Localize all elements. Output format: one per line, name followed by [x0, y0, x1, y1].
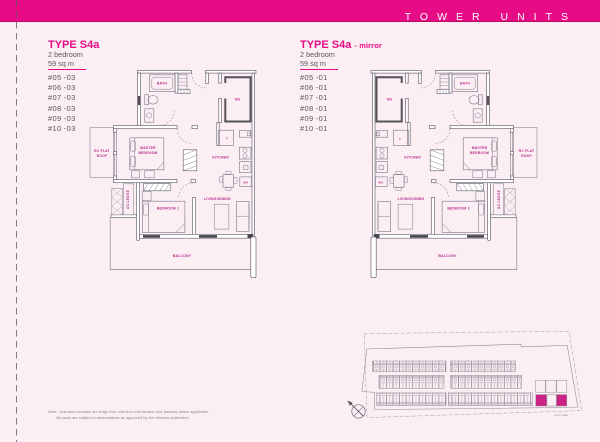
svg-text:BEDROOM 1: BEDROOM 1 — [447, 207, 469, 211]
svg-text:KITCHEN: KITCHEN — [404, 155, 421, 159]
svg-text:not to scale: not to scale — [554, 413, 568, 417]
svg-text:RC FLATROOF: RC FLATROOF — [519, 149, 535, 158]
svg-text:BALCONY: BALCONY — [438, 254, 457, 258]
svg-text:F: F — [399, 137, 401, 141]
svg-text:HD: HD — [387, 97, 393, 101]
svg-text:MASTERBEDROOM: MASTERBEDROOM — [138, 146, 157, 155]
svg-text:BEDROOM 1: BEDROOM 1 — [157, 207, 179, 211]
svg-text:HD: HD — [235, 97, 241, 101]
svg-text:AC LEDGE: AC LEDGE — [126, 189, 130, 209]
svg-text:KITCHEN: KITCHEN — [212, 155, 229, 159]
svg-text:LIVING/DINING: LIVING/DINING — [398, 197, 425, 201]
svg-text:F: F — [226, 136, 228, 140]
svg-text:RC FLATROOF: RC FLATROOF — [94, 149, 110, 158]
svg-text:WH: WH — [378, 181, 383, 185]
svg-text:BATH: BATH — [157, 82, 167, 86]
svg-text:MASTERBEDROOM: MASTERBEDROOM — [470, 146, 489, 155]
svg-text:AC LEDGE: AC LEDGE — [497, 189, 501, 209]
svg-text:LIVING/DINING: LIVING/DINING — [204, 197, 231, 201]
svg-text:BATH: BATH — [460, 82, 470, 86]
svg-text:WH: WH — [243, 181, 248, 185]
svg-text:BALCONY: BALCONY — [173, 254, 192, 258]
